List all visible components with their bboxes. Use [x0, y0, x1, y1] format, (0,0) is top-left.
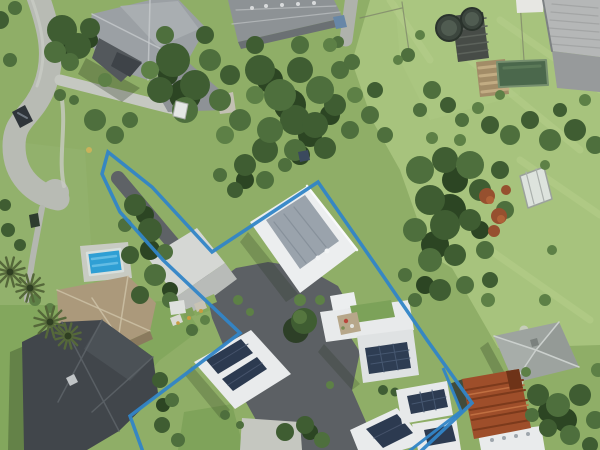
- trees-light-blob: [472, 102, 484, 114]
- house-top-center-vents-blob: [280, 3, 284, 7]
- trees-light-blob: [547, 245, 557, 255]
- trees-mid-blob: [456, 151, 484, 179]
- trees-mid-blob: [546, 393, 570, 417]
- trees-mid-blob: [456, 276, 474, 294]
- trees-mid-blob: [84, 109, 106, 131]
- trees-dark-blob: [227, 182, 243, 198]
- trees-dark-blob: [1, 223, 15, 237]
- trees-mid-blob: [236, 421, 244, 429]
- trees-dark-blob: [539, 419, 557, 437]
- trees-red-highlight-blob: [497, 215, 505, 223]
- trees-light-blob: [426, 132, 438, 144]
- trees-dark-blob: [147, 77, 173, 103]
- trees-red-highlight-blob: [486, 196, 494, 204]
- trees-light-blob: [495, 90, 505, 100]
- trees-mid-blob: [344, 54, 360, 70]
- unit6-vents-blob: [490, 438, 494, 442]
- trees-red-foliage-blob: [488, 225, 500, 237]
- trees-mid-blob: [264, 79, 296, 111]
- yellow-marker-dot: [86, 147, 92, 153]
- island-tree-light: [293, 310, 307, 324]
- trees-light-blob: [141, 61, 159, 79]
- trees-mid-blob: [209, 89, 231, 111]
- trees-mid-blob: [144, 264, 166, 286]
- trees-light-blob: [246, 86, 264, 104]
- palm-crown: [47, 319, 54, 326]
- trees-mid-blob: [291, 36, 309, 54]
- trees-dark-blob: [527, 384, 549, 406]
- trees-mid-blob: [341, 121, 359, 139]
- trees-dark-blob: [482, 272, 498, 288]
- trees-mid-blob: [171, 433, 185, 447]
- trees-dark-blob: [152, 372, 168, 388]
- unit1-skylights-blob: [325, 249, 330, 254]
- hedge-row-blob: [378, 385, 388, 395]
- trees-dark-blob: [302, 112, 328, 138]
- aerial-map-canvas[interactable]: [0, 0, 600, 450]
- trees-dark-blob: [234, 154, 256, 176]
- trees-mid-blob: [61, 53, 79, 71]
- trees-light-blob: [216, 126, 234, 144]
- trees-light-blob: [539, 294, 551, 306]
- trees-mid-blob: [213, 168, 227, 182]
- house-top-center-vents-blob: [250, 6, 254, 10]
- driveway-top-center: [346, 0, 352, 40]
- building-top-right-lower: [552, 51, 600, 92]
- trees-mid-blob: [220, 410, 230, 420]
- trees-mid-blob: [3, 53, 17, 67]
- trailer-white: [173, 101, 188, 119]
- trees-mid-blob: [401, 48, 415, 62]
- sheds-top-right-white: [516, 0, 544, 13]
- trees-dark-blob: [415, 185, 445, 215]
- trees-mid-blob: [539, 129, 561, 151]
- trees-dark-blob: [432, 147, 458, 173]
- trees-mid-blob: [8, 1, 22, 15]
- trees-light-blob: [454, 134, 466, 146]
- trees-light-blob: [315, 295, 325, 305]
- garden-dots-blob: [176, 321, 180, 325]
- trees-light-blob: [294, 294, 306, 306]
- trees-dark-blob: [287, 57, 313, 83]
- trees-dark-blob: [180, 70, 210, 100]
- trees-dark-blob: [430, 210, 460, 240]
- trees-dark-blob: [444, 244, 466, 266]
- trees-mid-blob: [229, 109, 251, 131]
- trees-mid-blob: [186, 324, 198, 336]
- trees-dark-blob: [121, 246, 139, 264]
- trees-mid-blob: [314, 432, 330, 448]
- trees-light-blob: [326, 381, 334, 389]
- trees-mid-blob: [156, 26, 174, 44]
- trees-light-blob: [415, 30, 425, 40]
- house-top-center-vents-blob: [264, 4, 268, 8]
- trees-dark-blob: [246, 36, 264, 54]
- trees-mid-blob: [500, 125, 520, 145]
- trees-mid-blob: [525, 408, 539, 422]
- unit6-vents-blob: [514, 434, 518, 438]
- trees-mid-blob: [199, 49, 221, 71]
- house-top-center-vents-blob: [296, 2, 300, 6]
- trees-mid-blob: [377, 127, 393, 143]
- palm-crown: [65, 333, 72, 340]
- water-tank-1-top: [441, 20, 457, 36]
- trees-mid-blob: [257, 117, 283, 143]
- trees-mid-blob: [455, 113, 469, 127]
- trees-dark-blob: [14, 239, 26, 251]
- trees-light-blob: [540, 160, 550, 170]
- trees-mid-blob: [165, 393, 179, 407]
- trees-mid-blob: [122, 112, 138, 128]
- trees-dark-blob: [459, 209, 481, 231]
- trees-dark-blob: [124, 194, 146, 216]
- aerial-imagery: [0, 0, 600, 450]
- trees-light-blob: [98, 73, 112, 87]
- trees-dark-blob: [429, 279, 451, 301]
- trees-mid-blob: [406, 156, 434, 184]
- trees-light-blob: [246, 308, 254, 316]
- trees-dark-blob: [481, 116, 499, 134]
- car-dark-driveway: [298, 150, 310, 162]
- unit3-deck: [337, 312, 361, 335]
- trees-red-foliage-blob: [501, 185, 511, 195]
- trees-mid-blob: [408, 293, 422, 307]
- trees-mid-blob: [106, 126, 124, 144]
- garden-dots-blob: [187, 316, 191, 320]
- house-top-center-vents-blob: [312, 1, 316, 5]
- unit6-vents-blob: [502, 436, 506, 440]
- trees-dark-blob: [131, 286, 149, 304]
- trees-mid-blob: [423, 81, 441, 99]
- trees-dark-blob: [80, 18, 100, 38]
- trees-dark-blob: [245, 55, 275, 85]
- trees-light-blob: [200, 315, 210, 325]
- water-tank-2-top: [465, 12, 479, 26]
- trees-light-blob: [323, 38, 337, 52]
- trees-dark-blob: [296, 416, 314, 434]
- trees-light-blob: [393, 55, 403, 65]
- trees-mid-blob: [403, 218, 427, 242]
- trees-mid-blob: [418, 248, 442, 272]
- trees-dark-blob: [440, 97, 456, 113]
- unit6-vents-blob: [526, 432, 530, 436]
- trees-dark-blob: [564, 119, 586, 141]
- trees-mid-blob: [69, 95, 79, 105]
- trees-dark-blob: [156, 43, 190, 77]
- trees-mid-blob: [476, 241, 494, 259]
- unit1-skylights-blob: [316, 256, 321, 261]
- pool-top-right-glint-line: [504, 66, 540, 68]
- trees-mid-blob: [54, 89, 66, 101]
- trees-dark-blob: [569, 384, 591, 406]
- trees-light-blob: [521, 367, 531, 377]
- trees-dark-blob: [367, 82, 383, 98]
- trees-dark-blob: [276, 423, 294, 441]
- unit3-deck-items-blob: [350, 324, 354, 328]
- palm-crown: [27, 285, 34, 292]
- trees-mid-blob: [398, 268, 412, 282]
- trees-dark-blob: [491, 161, 509, 179]
- trees-light-blob: [481, 293, 495, 307]
- trees-light-blob: [347, 87, 363, 103]
- trees-dark-blob: [154, 417, 170, 433]
- car-white-bl: [169, 300, 186, 315]
- trees-dark-blob: [314, 137, 336, 159]
- pool-top-right-glint: [504, 66, 540, 68]
- pool-top-right: [497, 60, 548, 87]
- trees-light-blob: [579, 94, 591, 106]
- trees-mid-blob: [256, 171, 274, 189]
- unit3-deck-items-blob: [341, 326, 345, 330]
- trees-dark-blob: [553, 103, 567, 117]
- trees-dark-blob: [521, 111, 539, 129]
- palm-crown: [7, 269, 14, 276]
- sidewalk: [62, 100, 64, 186]
- trees-dark-blob: [196, 26, 214, 44]
- trees-mid-blob: [560, 425, 580, 445]
- trees-mid-blob: [278, 158, 292, 172]
- garden-dots-blob: [199, 309, 203, 313]
- trees-dark-blob: [220, 65, 240, 85]
- trees-mid-blob: [306, 76, 334, 104]
- trees-mid-blob: [413, 103, 427, 117]
- unit3-deck-items-blob: [344, 319, 348, 323]
- trees-light-blob: [233, 295, 243, 305]
- trees-mid-blob: [361, 106, 379, 124]
